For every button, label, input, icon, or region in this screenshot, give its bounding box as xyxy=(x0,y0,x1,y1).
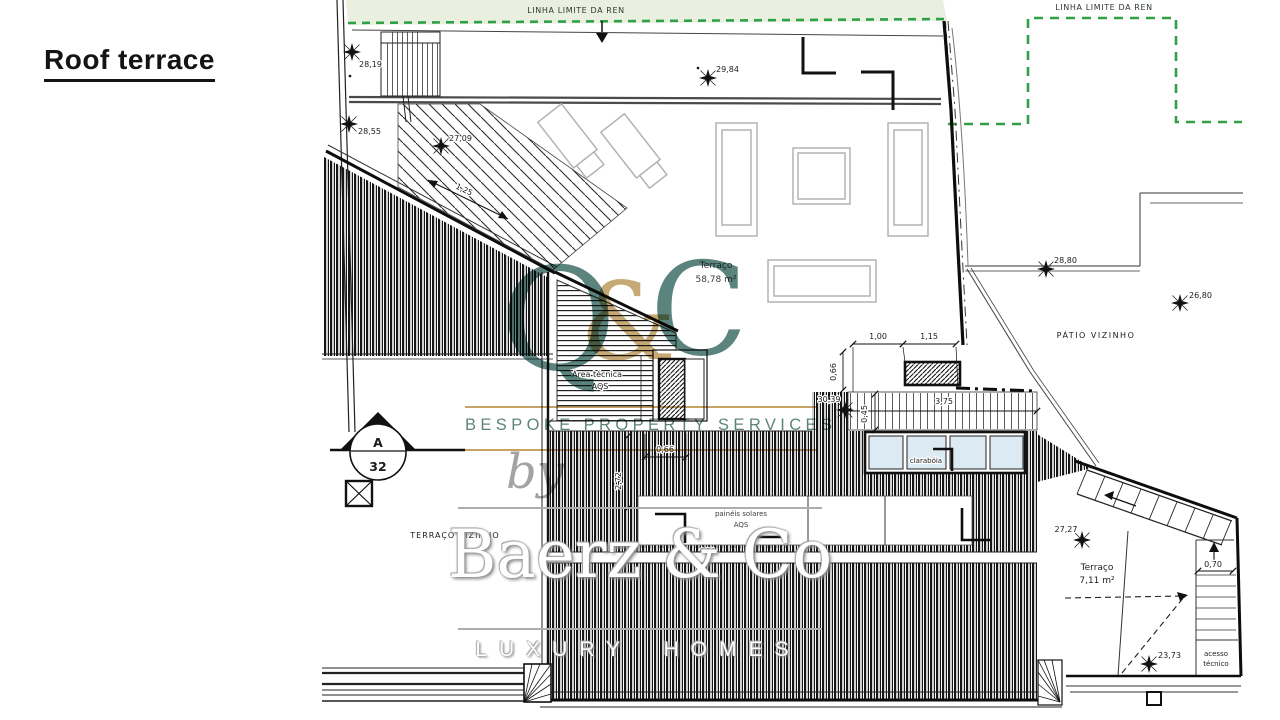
ren-right-label: LINHA LIMITE DA REN xyxy=(1055,3,1152,12)
elevation-28-55: 28,55 xyxy=(358,127,381,136)
corner-fan-hatch xyxy=(524,664,551,702)
dim-1-15: 1,15 xyxy=(920,332,938,341)
floor-plan-drawing: LINHA LIMITE DA REN LINHA LIMITE DA REN xyxy=(0,0,1280,720)
skylight-label: clarabóia xyxy=(910,457,942,465)
terraco-vizinho-label: TERRAÇO VIZINHO xyxy=(409,531,499,540)
section-number: 32 xyxy=(369,459,386,474)
elevation-star-icon xyxy=(343,43,361,61)
dim-0-66-a: 0,66 xyxy=(829,363,838,381)
terraco-main-label: Terraço xyxy=(699,261,733,271)
dim-0-70: 0,70 xyxy=(1204,560,1222,569)
elevation-30-39: 30,39 xyxy=(818,395,841,404)
dim-3-75: 3,75 xyxy=(935,397,953,406)
corner-fan-hatch xyxy=(1038,660,1062,705)
elevation-23-73: 23,73 xyxy=(1158,651,1181,660)
solar-panels-label: painéis solares xyxy=(715,510,767,518)
elevation-28-19: 28,19 xyxy=(359,60,382,69)
coffee-table xyxy=(793,148,850,204)
dim-0-66-b: 0,66 xyxy=(656,445,674,454)
shaft-treads xyxy=(1196,575,1236,630)
area-tecnica-label2: AQS xyxy=(592,382,609,391)
solar-panels-label2: AQS xyxy=(734,521,749,529)
sun-lounger xyxy=(601,114,670,191)
elevation-29-84: 29,84 xyxy=(716,65,739,74)
elevation-star-icon xyxy=(1140,655,1158,673)
area-tecnica-label: Área técnica xyxy=(572,368,622,379)
sofa-right xyxy=(888,123,928,236)
right-terrace: 0,70 acesso técnico 27,27 Terraço 7,11 m… xyxy=(1055,461,1241,705)
stair-direction-arrow-icon xyxy=(1104,491,1114,500)
terraco-small-area: 7,11 m² xyxy=(1079,576,1115,586)
bench xyxy=(768,260,876,302)
sofa-left xyxy=(716,123,757,236)
patio-vizinho-label: PÁTIO VIZINHO xyxy=(1057,329,1136,340)
ren-band-label: LINHA LIMITE DA REN xyxy=(527,6,624,15)
elevation-27-27: 27,27 xyxy=(1055,525,1078,534)
elevation-26-80: 26,80 xyxy=(1189,291,1212,300)
elevation-star-icon xyxy=(432,137,450,155)
elevation-star-icon xyxy=(699,69,717,87)
elevation-star-icon xyxy=(340,115,358,133)
acesso-label2: técnico xyxy=(1203,660,1228,668)
elevation-star-icon xyxy=(1037,260,1055,278)
patio-vizinho: 28,80 26,80 PÁTIO VIZINHO xyxy=(965,193,1243,340)
section-marker: A 32 xyxy=(330,412,465,506)
terraco-small-label: Terraço xyxy=(1080,563,1114,573)
elevation-star-icon xyxy=(1171,294,1189,312)
dim-0-45: 0,45 xyxy=(860,405,869,423)
dim-2-72: 2,72 xyxy=(614,472,623,490)
terraco-main-area: 58,78 m² xyxy=(695,275,736,285)
section-letter: A xyxy=(373,435,383,450)
north-arrow-icon xyxy=(596,33,608,43)
elevation-27-09: 27,09 xyxy=(449,134,472,143)
dim-1-00: 1,00 xyxy=(869,332,887,341)
acesso-label: acesso xyxy=(1204,650,1228,658)
elevation-28-80: 28,80 xyxy=(1054,256,1077,265)
roof-terrace-plan-page: Roof terrace xyxy=(0,0,1280,720)
